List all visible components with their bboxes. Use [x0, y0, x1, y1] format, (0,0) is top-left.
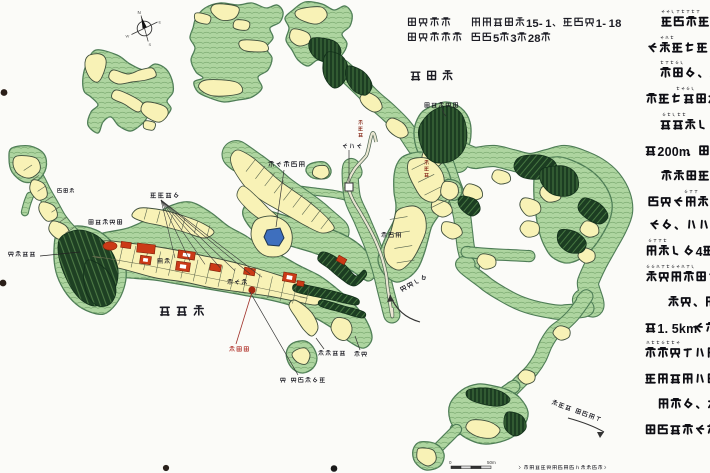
svg-text:.: . — [665, 322, 668, 336]
svg-text:0: 0 — [672, 145, 679, 159]
svg-text:5: 5 — [532, 18, 538, 30]
svg-text:S: S — [149, 42, 152, 47]
svg-text:E: E — [159, 20, 162, 25]
svg-text:1: 1 — [545, 18, 551, 30]
svg-text:k: k — [679, 322, 686, 336]
svg-text:m: m — [679, 145, 690, 159]
svg-text:2: 2 — [657, 145, 664, 159]
svg-text:2: 2 — [528, 33, 534, 45]
svg-text:m: m — [686, 322, 697, 336]
svg-text:3: 3 — [510, 33, 516, 45]
svg-text:8: 8 — [615, 18, 621, 30]
svg-text:1: 1 — [657, 322, 664, 336]
svg-text:1: 1 — [526, 18, 532, 30]
svg-text:5: 5 — [672, 322, 679, 336]
svg-text:8: 8 — [534, 33, 540, 45]
svg-text:-: - — [539, 18, 543, 30]
svg-text:50m: 50m — [487, 460, 496, 465]
svg-text:4: 4 — [696, 245, 703, 259]
svg-text:N: N — [138, 10, 141, 15]
svg-text:1: 1 — [596, 18, 602, 30]
svg-text:-: - — [602, 18, 606, 30]
svg-text:0: 0 — [665, 145, 672, 159]
svg-text:1: 1 — [609, 18, 615, 30]
svg-text:W: W — [126, 34, 130, 39]
svg-text:5: 5 — [493, 33, 499, 45]
